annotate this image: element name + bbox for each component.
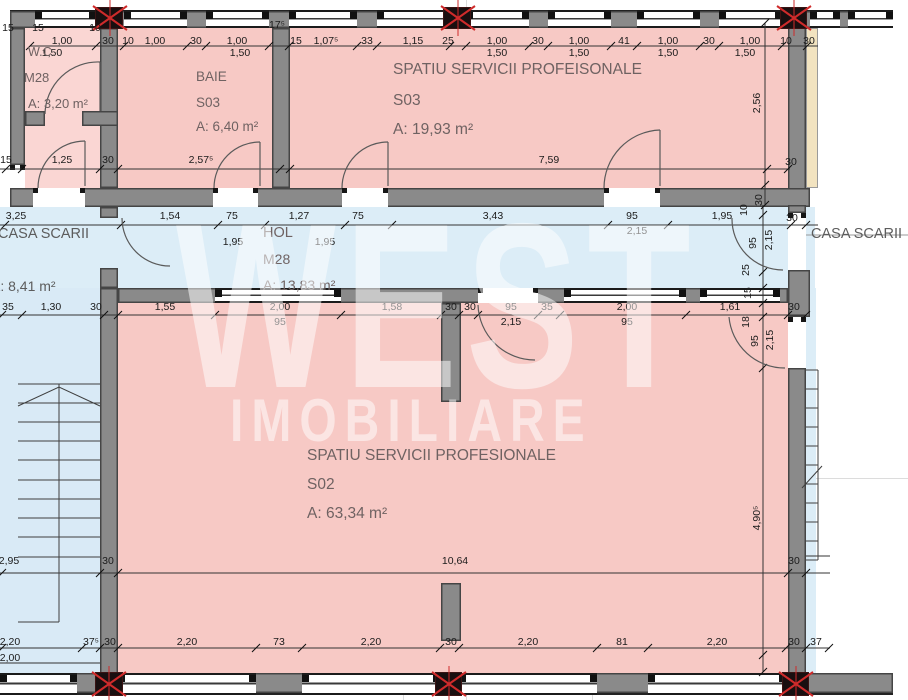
dim-label: 30	[102, 36, 114, 47]
dim-label: 10	[739, 204, 750, 216]
room-hol-area: A: 13,83 m²	[263, 278, 335, 292]
dim-label: 2,15	[765, 330, 776, 350]
dim-label: 2,15	[627, 226, 647, 237]
dim-label: 2,15	[501, 317, 521, 328]
dim-label: 95	[626, 211, 638, 222]
dim-label: 10,64	[442, 556, 468, 567]
room-s02-name: SPATIU SERVICII PROFESIONALE	[307, 448, 556, 464]
dim-label: 35	[2, 302, 14, 313]
dim-label: 41	[618, 36, 630, 47]
dim-label: 30	[102, 556, 114, 567]
dim-label: 15	[2, 23, 14, 34]
dim-label: 1,55	[155, 302, 175, 313]
dim-label: 30	[788, 556, 800, 567]
dim-label: 1,50	[735, 48, 755, 59]
dim-label: 30	[754, 194, 765, 206]
room-s03-area: A: 19,93 m²	[393, 122, 473, 138]
dim-label: 30	[788, 302, 800, 313]
room-hol-name: HOL	[263, 226, 293, 241]
dim-label: 2,95	[0, 556, 19, 567]
dim-label: 7,59	[539, 155, 559, 166]
dim-label: 37⁵	[83, 637, 99, 648]
dim-label: 95	[505, 302, 517, 313]
dim-label: 18	[741, 316, 752, 328]
dim-label: 15	[32, 23, 44, 34]
dim-label: 75	[226, 211, 238, 222]
dim-label: 30	[786, 213, 798, 224]
dim-label: 1,54	[160, 211, 180, 222]
dim-label: 2,15	[764, 230, 775, 250]
dim-label: 30	[788, 637, 800, 648]
dim-label: 1,25	[52, 155, 72, 166]
dim-label: 2,20	[361, 637, 381, 648]
dim-label: 1,15	[403, 36, 423, 47]
dim-label: 10	[122, 36, 134, 47]
room-s03-name: SPATIU SERVICII PROFEISONALE	[393, 62, 642, 78]
room-wc-code: M28	[24, 71, 49, 84]
dim-label: 30	[102, 155, 114, 166]
dim-label: 10	[89, 23, 101, 34]
dim-label: 30	[464, 302, 476, 313]
stairwell-left-area: A: 8,41 m²	[0, 279, 56, 293]
dim-label: 4,90⁵	[752, 506, 763, 531]
dim-label: 1,50	[487, 48, 507, 59]
dim-label: 81	[616, 637, 628, 648]
dim-label: 35	[541, 302, 553, 313]
dim-label: 30	[445, 302, 457, 313]
dim-label: 2,20	[518, 637, 538, 648]
dim-label: 2,20	[177, 637, 197, 648]
dim-label: 1,00	[569, 36, 589, 47]
room-s02-area: A: 63,34 m²	[307, 506, 387, 522]
room-baie-name: BAIE	[196, 70, 227, 84]
dim-label: 33	[361, 36, 373, 47]
dimension-layer: 15151017⁵1,0030101,00301,00151,07⁵331,15…	[0, 0, 908, 700]
room-wc-name: W.C.	[28, 46, 55, 59]
dim-label: 30	[190, 36, 202, 47]
dim-label: 95	[274, 317, 286, 328]
dim-label: 1,50	[230, 48, 250, 59]
dim-label: 3,43	[483, 211, 503, 222]
dim-label: 37	[810, 637, 822, 648]
dim-label: 1,50	[569, 48, 589, 59]
dim-label: 1,00	[658, 36, 678, 47]
room-baie-code: S03	[196, 96, 220, 110]
dim-label: 2,00	[270, 302, 290, 313]
dim-label: 75	[352, 211, 364, 222]
dim-label: 30	[785, 157, 797, 168]
dim-label: 30	[104, 637, 116, 648]
dim-label: 95	[621, 317, 633, 328]
dim-label: 1,58	[382, 302, 402, 313]
dim-label: 1,07⁵	[314, 36, 339, 47]
dim-label: 95	[750, 335, 761, 347]
floor-plan: 15151017⁵1,0030101,00301,00151,07⁵331,15…	[0, 0, 908, 700]
dim-label: 1,95	[223, 237, 243, 248]
dim-label: 1,30	[41, 302, 61, 313]
dim-label: 2,00	[617, 302, 637, 313]
dim-label: 1,00	[740, 36, 760, 47]
dim-label: 30	[703, 36, 715, 47]
room-wc-area: A: 3,20 m²	[28, 97, 88, 110]
dim-label: 2,57⁵	[189, 155, 214, 166]
dim-label: 17⁵	[269, 20, 285, 31]
dim-label: 15	[743, 287, 754, 299]
room-s03-code: S03	[393, 93, 421, 109]
dim-label: 1,00	[487, 36, 507, 47]
dim-label: 2,20	[0, 637, 20, 648]
dim-label: 25	[741, 264, 752, 276]
dim-label: 30	[532, 36, 544, 47]
dim-label: 30	[90, 302, 102, 313]
dim-label: 15	[290, 36, 302, 47]
room-s02-code: S02	[307, 477, 335, 493]
dim-label: 15	[0, 155, 12, 166]
dim-label: 30	[445, 637, 457, 648]
dim-label: 1,95	[315, 237, 335, 248]
dim-label: 1,27	[289, 211, 309, 222]
dim-label: 2,20	[707, 637, 727, 648]
stairwell-left-label: CASA SCARII	[0, 227, 89, 242]
dim-label: 1,00	[145, 36, 165, 47]
dim-label: 73	[273, 637, 285, 648]
dim-label: 30	[803, 36, 815, 47]
dim-label: 1,95	[712, 211, 732, 222]
dim-label: 2,00	[0, 653, 20, 664]
dim-label: 95	[748, 237, 759, 249]
dim-label: 1,61	[720, 302, 740, 313]
dim-label: 1,00	[227, 36, 247, 47]
dim-label: 25	[442, 36, 454, 47]
dim-label: 2,56	[752, 93, 763, 113]
stairwell-right-label: CASA SCARII	[811, 227, 902, 242]
dim-label: 10	[780, 36, 792, 47]
dim-label: 3,25	[6, 211, 26, 222]
dim-label: 1,50	[658, 48, 678, 59]
room-hol-code: M28	[263, 252, 290, 266]
room-baie-area: A: 6,40 m²	[196, 120, 258, 134]
